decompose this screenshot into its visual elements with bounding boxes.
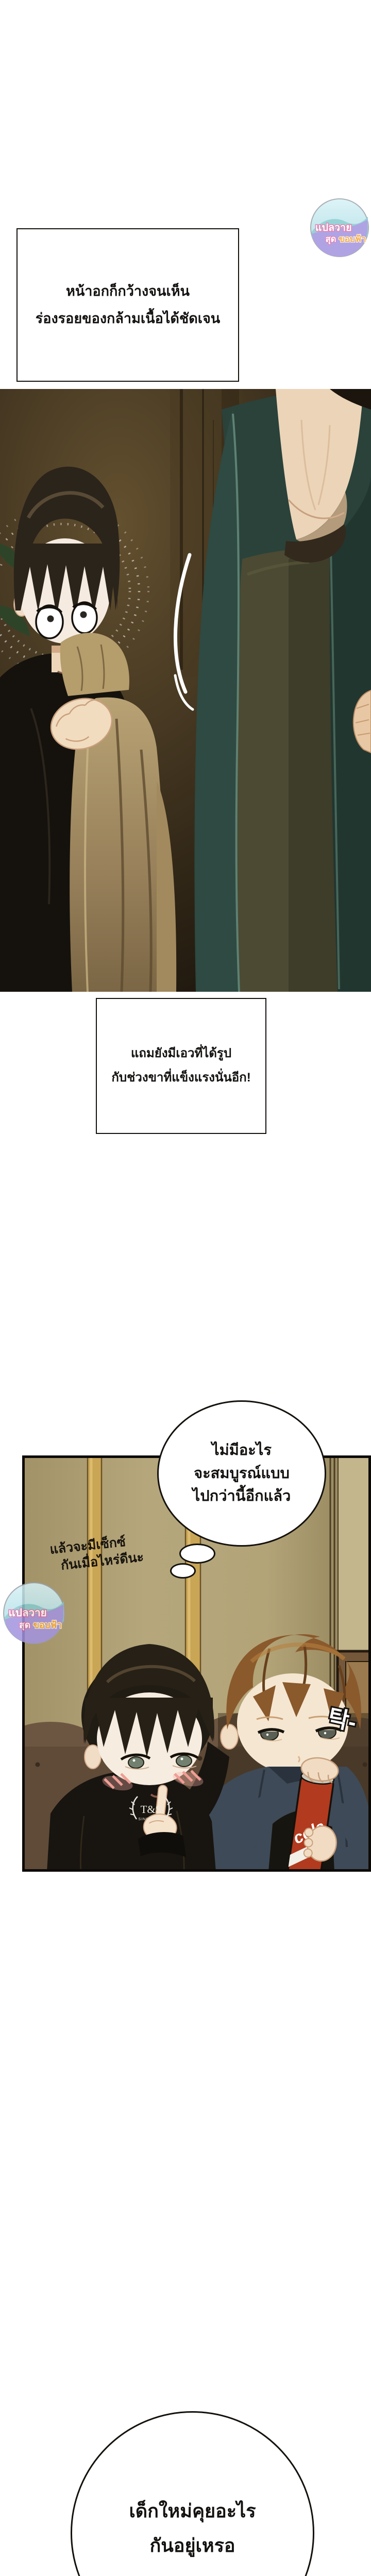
watermark2-line-1: แปลวาย xyxy=(8,1607,46,1619)
watermark-line-1: แปลวาย xyxy=(315,222,352,233)
panel1-illustration xyxy=(0,389,371,992)
translator-logo-icon-2: แปลวาย สุด ขอบฟ้า xyxy=(2,1581,66,1645)
comic-panel-dark-scene xyxy=(0,389,371,992)
thought-bubble-line-1: ไม่มีอะไร xyxy=(212,1439,272,1462)
translator-watermark-badge: แปลวาย สุด ขอบฟ้า xyxy=(309,197,370,258)
translator-watermark-badge-2: แปลวาย สุด ขอบฟ้า xyxy=(2,1581,66,1645)
webtoon-page: หน้าอกก็กว้างจนเห็น ร่องรอยของกล้ามเนื้อ… xyxy=(0,0,371,2576)
svg-text:สุด ขอบฟ้า: สุด ขอบฟ้า xyxy=(19,1620,62,1631)
hoodie-logo-subtext: SINCE 1991 xyxy=(139,1818,164,1821)
thought-bubble-line-2: จะสมบูรณ์แบบ xyxy=(194,1462,290,1485)
watermark2-line-2b: ขอบฟ้า xyxy=(33,1620,62,1630)
narration-box-2: แถมยังมีเอวที่ได้รูป กับช่วงขาที่แข็งแรง… xyxy=(96,998,266,1134)
thought-bubble: ไม่มีอะไร จะสมบูรณ์แบบ ไปกว่านี้อีกแล้ว xyxy=(157,1400,326,1547)
translator-logo-icon: แปลวาย สุด ขอบฟ้า xyxy=(309,197,370,258)
bottom-bubble-line-2: กันอยู่เหรอ xyxy=(72,2529,313,2563)
thought-bubble-line-3: ไปกว่านี้อีกแล้ว xyxy=(193,1485,291,1508)
watermark-line-2b: ขอบฟ้า xyxy=(339,234,366,244)
bottom-bubble-line-1: เด็กใหม่คุยอะไร xyxy=(72,2494,313,2529)
bottom-speech-bubble: เด็กใหม่คุยอะไร กันอยู่เหรอ xyxy=(71,2411,314,2576)
narration-box-1-line-2: ร่องรอยของกล้ามเนื้อได้ชัดเจน xyxy=(36,305,221,332)
narration-box-2-line-2: กับช่วงขาที่แข็งแรงนั่นอีก! xyxy=(111,1066,250,1090)
watermark-line-2a: สุด xyxy=(325,234,336,245)
narration-box-1: หน้าอกก็กว้างจนเห็น ร่องรอยของกล้ามเนื้อ… xyxy=(16,228,239,382)
tall-man-figure xyxy=(194,389,371,992)
narration-box-1-line-1: หน้าอกก็กว้างจนเห็น xyxy=(66,278,190,305)
thought-bubble-dot-large xyxy=(179,1544,215,1564)
narration-box-2-line-1: แถมยังมีเอวที่ได้รูป xyxy=(131,1042,231,1066)
watermark2-line-2a: สุด xyxy=(19,1620,30,1631)
thought-bubble-dot-small xyxy=(170,1563,196,1579)
hoodie-logo-text: T&S xyxy=(141,1803,162,1816)
svg-text:สุด ขอบฟ้า: สุด ขอบฟ้า xyxy=(325,234,366,245)
